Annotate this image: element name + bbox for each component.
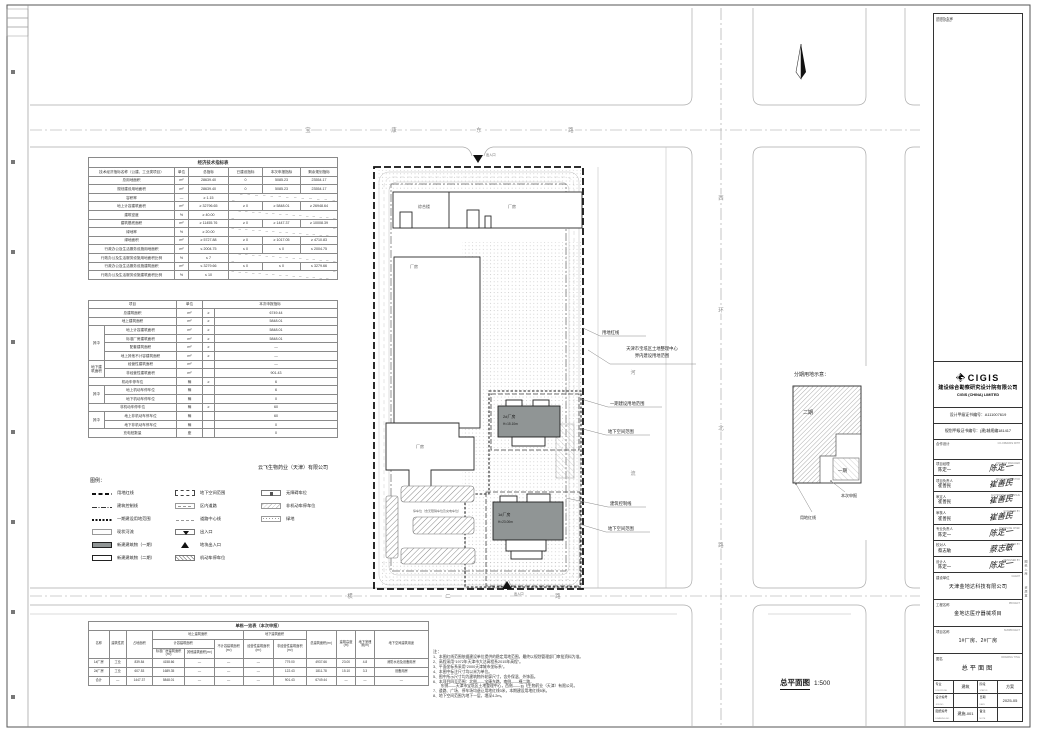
- legend-item-new-building-phase2: 新建建筑物（二期）: [92, 554, 155, 562]
- table-cell: ≥ 0: [229, 202, 263, 211]
- table-cell: 技术经济指标名称（公建、工业类项目）: [89, 168, 175, 177]
- table-cell: 地下建筑面积: [243, 631, 306, 640]
- table-cell: 地上计容建筑面积: [105, 326, 177, 335]
- table-cell: 非经营性建筑面积: [105, 369, 177, 378]
- grid-value-drawing-no: 建施-001: [954, 708, 978, 721]
- field-drawing-title: 图名 DRAWING TITLE 总平面图: [934, 654, 1022, 681]
- table-cell: 工业: [109, 667, 126, 676]
- table-cell: m²: [175, 236, 189, 245]
- table-cell: 5848.01: [215, 317, 338, 326]
- table-cell: 4937.66: [306, 658, 336, 667]
- table-cell: 建筑基底面积: [89, 219, 175, 228]
- building-2-label: 2#厂房: [503, 413, 515, 419]
- svg-text:宝: 宝: [305, 126, 311, 134]
- table-cell: ≥ 1.15: [189, 193, 229, 202]
- signature-row-discipline-chief: 专业负责人 DISCIPLINE CHIEF 陈定一 陈定一: [934, 525, 1022, 541]
- svg-text:环: 环: [718, 307, 724, 314]
- table-cell: 5848.01: [152, 676, 184, 685]
- table-cell: %: [175, 271, 189, 280]
- legend-item-underground: 地下空间范围: [175, 489, 225, 497]
- table-cell: 6749.44: [306, 676, 336, 685]
- signature-row-examined: 审核人 EXAMINED BY 崔善民 崔善民: [934, 508, 1022, 524]
- table-cell: %: [175, 228, 189, 237]
- table-cell: 6: [215, 386, 338, 395]
- table-cell: %: [175, 210, 189, 219]
- table-cell: 非经营性建筑面积(m²): [274, 640, 306, 659]
- table-cell: [203, 412, 215, 421]
- table-cell: [229, 193, 338, 202]
- signature: 崔善民: [989, 509, 1014, 523]
- table-cell: [229, 228, 338, 237]
- table-cell: 工业: [109, 658, 126, 667]
- legend-item-parking: 机动车停车位: [175, 554, 225, 562]
- table-cell: m²: [177, 360, 203, 369]
- table-cell: 其中: [89, 412, 105, 429]
- grid-value-note: [998, 708, 1022, 721]
- table-cell: —: [185, 667, 214, 676]
- table-cell: m²: [175, 245, 189, 254]
- grid-label-status: 阶段STATUS: [978, 681, 998, 693]
- table-cell: 绿地率: [89, 228, 175, 237]
- table-cell: [203, 369, 215, 378]
- table-cell: 消防水池及设备用房: [374, 658, 428, 667]
- annotation-phase1-range: 一期建设用地范围: [610, 400, 644, 407]
- site-entrance-swatch-icon: [175, 542, 195, 548]
- grid-label-job-no: 设计编号JOB NO.: [934, 694, 954, 706]
- grid-value-date: 2025-05: [998, 694, 1022, 706]
- legend-item-control-line: 建筑控制线: [92, 502, 138, 510]
- notes-block: 注： 1、本图红线范围依据建设单位提供的稳定用地范围，最终以规划管理部门审批资料…: [433, 649, 633, 699]
- factory-label-l: 厂房: [416, 443, 424, 449]
- table-cell: 容积率: [89, 193, 175, 202]
- legend-item-phase1-range: 一期建设用地范围: [92, 515, 151, 523]
- svg-text:路: 路: [718, 541, 724, 549]
- table-cell: 0: [229, 176, 263, 185]
- table-cell: 设备用房: [374, 667, 428, 676]
- annex-label: 综合楼: [418, 203, 430, 209]
- note-line: 8、地下空间范围为地下一层，埋深4.2m。: [433, 694, 633, 699]
- phase-redline-label: 用地红线: [800, 514, 816, 520]
- parking-note: 停车位（含无障碍车位及充电车位）: [413, 508, 461, 513]
- legend-item-internal-road: 区内道路: [175, 502, 217, 510]
- table-cell: 1689.35: [152, 667, 184, 676]
- table-cell: ≥: [203, 352, 215, 361]
- table-cell: [203, 395, 215, 404]
- owner-company-name: 云飞生物药业（天津）有限公司: [258, 464, 328, 471]
- table-cell: 辆: [177, 420, 203, 429]
- svg-text:路: 路: [568, 126, 574, 134]
- table-cell: 0: [215, 420, 338, 429]
- table-cell: 建筑性质: [109, 631, 126, 659]
- table-cell: 4158.66: [152, 658, 184, 667]
- table-cell: m²: [177, 352, 203, 361]
- table-cell: 单位: [177, 300, 203, 309]
- legend-item-accessible-parking: 无障碍车位: [261, 489, 307, 497]
- table-cell: —: [109, 676, 126, 685]
- legend-item-green: 绿地: [261, 515, 294, 523]
- archive-stamp-label: 图纸入库: [1024, 560, 1028, 576]
- table-cell: m²: [175, 176, 189, 185]
- table-cell: ≤ 7: [189, 253, 229, 262]
- table-cell: 地上其他不计容建筑面积: [105, 352, 177, 361]
- table-cell: 地下建筑面积: [89, 360, 105, 377]
- annotation-neighbor2: 界内建设用地范围: [635, 352, 669, 359]
- table-cell: 建筑高度(m): [336, 631, 355, 659]
- table-cell: 辆: [177, 412, 203, 421]
- table-cell: %: [175, 253, 189, 262]
- table-cell: —: [336, 676, 355, 685]
- svg-text:康: 康: [391, 126, 397, 134]
- table-cell: 6749.44: [215, 309, 338, 318]
- company-name-en: CIGIS (CHINA) LIMITED: [957, 393, 999, 397]
- table-cell: 辆: [177, 403, 203, 412]
- table-cell: 本次申报指标: [263, 168, 301, 177]
- table-cell: m²: [175, 262, 189, 271]
- table-cell: ≥ 11455.76: [189, 219, 229, 228]
- table-cell: ≥ 1017.05: [263, 236, 301, 245]
- logo-word: CIGIS: [968, 373, 1000, 383]
- company-logo-block: CIGIS 建设综合勘察研究设计院有限公司 CIGIS (CHINA) LIMI…: [934, 362, 1022, 408]
- table-cell: —: [214, 676, 243, 685]
- table-cell: 5848.01: [215, 334, 338, 343]
- table-cell: ≥ 10008.39: [301, 219, 338, 228]
- phase2-label: 二期: [803, 410, 813, 416]
- planning-certificate: 规划甲级证书编号：(建)城规编181417: [934, 424, 1022, 440]
- entrance-bottom-label: 出入口: [514, 591, 524, 596]
- table-cell: 28639.40: [189, 185, 229, 194]
- table-cell: 已建设指标: [229, 168, 263, 177]
- table-cell: 0: [215, 429, 338, 438]
- table-cell: 经营性建筑面积: [105, 360, 177, 369]
- svg-text:横: 横: [347, 592, 353, 600]
- right-margin-strip: 图纸入库 资质章: [1024, 560, 1028, 720]
- table-cell: m²: [177, 309, 203, 318]
- control-line-swatch-icon: [92, 507, 112, 508]
- table-cell: 其中: [89, 326, 105, 360]
- title-block-grid: 专业DISCIPLINE 建筑 阶段STATUS 方案 设计编号JOB NO. …: [934, 681, 1022, 721]
- table-cell: ≥ 40.00: [189, 210, 229, 219]
- table-cell: 经济技术指标表: [89, 158, 338, 168]
- table-cell: ≤ 0: [229, 245, 263, 254]
- centerline-swatch-icon: [175, 520, 195, 521]
- annotation-underground-2: 地下空间范围: [608, 525, 634, 532]
- table: 项目单位本次申报指标总建筑面积m²≥6749.44地上建筑面积m²≥5848.0…: [88, 300, 338, 439]
- table-cell: 0: [229, 185, 263, 194]
- table-cell: 机动车停车位: [89, 377, 177, 386]
- svg-text:河: 河: [630, 369, 635, 376]
- legend-item-new-building-phase1: 新建建筑物（一期）: [92, 541, 155, 549]
- table-cell: m²: [177, 317, 203, 326]
- grid-value-status: 方案: [998, 681, 1022, 693]
- grid-label-drawing-no: 图纸编号DRAWING NO.: [934, 708, 954, 721]
- table-cell: —: [214, 667, 243, 676]
- table-cell: ≥ 0: [229, 236, 263, 245]
- table-cell: 单位: [175, 168, 189, 177]
- table-cell: 计容建筑面积: [152, 640, 214, 649]
- table-cell: 607.53: [126, 667, 152, 676]
- table-cell: ≥: [203, 334, 215, 343]
- table-cell: 地下空间建筑用途: [374, 631, 428, 659]
- scale-title: 总平面图: [780, 677, 810, 690]
- table-cell: —: [185, 658, 214, 667]
- table-cell: [229, 210, 338, 219]
- table-cell: —: [374, 676, 428, 685]
- table-cell: 4.8: [356, 658, 374, 667]
- table-cell: —: [243, 676, 273, 685]
- table-cell: 行政办公及生活服务设施用地面积: [89, 245, 175, 254]
- annotation-redline: 用地红线: [602, 329, 620, 336]
- signature: 陈定一: [989, 461, 1014, 475]
- table-cell: 地上机动车停车位: [105, 386, 177, 395]
- table-cell: 规划建设用地面积: [89, 185, 175, 194]
- table-cell: ≥ 0: [229, 219, 263, 228]
- table-cell: [229, 253, 338, 262]
- building-1-height: H=23.00m: [498, 520, 513, 524]
- building-phase1-swatch-icon: [92, 542, 112, 548]
- table-cell: ≤ 2004.75: [301, 245, 338, 254]
- site-interior: 综合楼 厂房 厂房 厂房 2#厂房 H=15.10m 1#厂房 H=23.00m…: [374, 152, 583, 596]
- table-cell: ≤ 10: [189, 271, 229, 280]
- table-cell: [203, 386, 215, 395]
- field-project: 工程名称 PROJECT 金地达医疗器械项目: [934, 600, 1022, 627]
- signature: 崔善民: [989, 477, 1014, 491]
- table-cell: 122.43: [274, 667, 306, 676]
- table: 单栋一览表（本次申报）名称建筑性质占地面积地上建筑面积地下建筑面积总建筑面积(m…: [88, 621, 429, 686]
- note-seal-box: 说明及会审 NOTE & SEAL: [934, 14, 1022, 362]
- table-cell: ≤ 3279.66: [301, 262, 338, 271]
- table-cell: 合计: [89, 676, 110, 685]
- signature-row-checked: 校对人 CHECKED BY 蔡志敏 蔡志敏: [934, 541, 1022, 557]
- redline-swatch-icon: [92, 493, 112, 495]
- table-cell: 绿地面积: [89, 236, 175, 245]
- table-cell: ≥: [203, 377, 215, 386]
- table-cell: 839.84: [126, 658, 152, 667]
- legend-item-site-entrance: 地块出入口: [175, 541, 221, 549]
- table-cell: —: [215, 352, 338, 361]
- table-cell: ≥ 20.00: [189, 228, 229, 237]
- svg-text:西: 西: [718, 195, 724, 202]
- qualification-stamp-label: 资质章: [1024, 586, 1028, 598]
- application-indicator-table: 项目单位本次申报指标总建筑面积m²≥6749.44地上建筑面积m²≥5848.0…: [88, 300, 338, 439]
- table-cell: 标准厂房建筑面积(m²): [152, 649, 184, 659]
- legend-item-entrance: 出入口: [175, 528, 213, 536]
- svg-text:北: 北: [718, 424, 724, 432]
- entrance-top-label: 出入口: [486, 152, 496, 157]
- table-cell: —: [185, 676, 214, 685]
- table-cell: —: [215, 360, 338, 369]
- nonmotor-parking-swatch-icon: [261, 503, 281, 509]
- table-cell: 配套建筑面积: [105, 343, 177, 352]
- table-cell: 15.10: [336, 667, 355, 676]
- table-cell: ≥ 5727.88: [189, 236, 229, 245]
- legend-item-centerline: 道路中心线: [175, 515, 221, 523]
- table-cell: ≥ 1447.37: [263, 219, 301, 228]
- table-cell: m²: [177, 369, 203, 378]
- table-cell: 901.43: [215, 369, 338, 378]
- table-cell: [229, 271, 338, 280]
- table-cell: 地下非机动车停车位: [105, 420, 177, 429]
- table-cell: m²: [175, 219, 189, 228]
- legend-item-river: 现状河流: [92, 528, 134, 536]
- table-cell: ≥ 5848.01: [263, 202, 301, 211]
- signature: 陈定一: [989, 558, 1014, 572]
- svg-text:二: 二: [445, 594, 451, 600]
- river-swatch-icon: [92, 529, 112, 535]
- table-cell: 总指标: [189, 168, 229, 177]
- economic-indicator-table: 经济技术指标表技术经济指标名称（公建、工业类项目）单位总指标已建设指标本次申报指…: [88, 157, 338, 280]
- table-cell: 5848.01: [215, 326, 338, 335]
- signature: 崔善民: [989, 493, 1014, 507]
- grid-value-discipline: 建筑: [954, 681, 978, 693]
- grid-label-date: 日期DATE: [978, 694, 998, 706]
- table-cell: 60: [215, 412, 338, 421]
- table-cell: —: [243, 658, 273, 667]
- table-cell: 1#厂房: [89, 658, 110, 667]
- table-cell: ≥ 32796.65: [189, 202, 229, 211]
- table-cell: 其他建筑面积(m²): [185, 649, 214, 659]
- table-cell: m²: [175, 202, 189, 211]
- annotation-neighbor1: 天津市宝坻区土地整理中心: [626, 345, 678, 352]
- north-arrow-icon: [796, 44, 806, 79]
- table-cell: —: [175, 193, 189, 202]
- building-1-label: 1#厂房: [498, 511, 510, 517]
- table-cell: ≥: [203, 317, 215, 326]
- table-cell: [203, 360, 215, 369]
- table-cell: 行政办公及生活服务设施用地面积比例: [89, 253, 175, 262]
- table-cell: 其中: [89, 386, 105, 403]
- signature: 蔡志敏: [989, 542, 1014, 556]
- entrance-swatch-icon: [175, 529, 195, 535]
- table-cell: 总建筑面积: [89, 309, 177, 318]
- table-cell: ≥: [203, 326, 215, 335]
- cigis-logo-icon: [956, 373, 965, 382]
- svg-text:流: 流: [630, 470, 635, 477]
- signature-row-project-manager: 项目经理 PROJECT MANAGER 陈定一 陈定一: [934, 460, 1022, 476]
- table-cell: 23554.17: [301, 176, 338, 185]
- table-cell: 779.00: [274, 658, 306, 667]
- company-name-cn: 建设综合勘察研究设计院有限公司: [938, 384, 1017, 391]
- table-cell: 0: [215, 395, 338, 404]
- table-cell: 座: [177, 429, 203, 438]
- table-cell: —: [356, 676, 374, 685]
- field-subproject: 项目名称 SUBPROJECT 1#厂房、2#厂房: [934, 627, 1022, 654]
- phase-apply-label: 本次申报: [841, 492, 857, 498]
- table-cell: 项目: [89, 300, 177, 309]
- factory-label-top: 厂房: [508, 203, 516, 209]
- title-block: 说明及会审 NOTE & SEAL CIGIS 建设综合勘察研究设计院有限公司 …: [933, 13, 1023, 722]
- table-cell: —: [214, 658, 243, 667]
- table-cell: ≤ 0: [229, 262, 263, 271]
- signature-row-authorized: 审定人 AUTHORIZED FOR ISSUE 崔善民 崔善民: [934, 492, 1022, 508]
- table-cell: 总建筑面积(m²): [306, 631, 336, 659]
- table-cell: 名称: [89, 631, 110, 659]
- building-phase2-swatch-icon: [92, 555, 112, 561]
- table-cell: ≥ 4710.83: [301, 236, 338, 245]
- table-cell: ≥: [203, 403, 215, 412]
- table-cell: 建筑密度: [89, 210, 175, 219]
- signature: 陈定一: [989, 526, 1014, 540]
- parking-swatch-icon: [175, 555, 195, 561]
- table-cell: m²: [175, 185, 189, 194]
- factory-label-left: 厂房: [410, 263, 418, 269]
- phase-diagram-title: 分期用地示意：: [794, 371, 829, 378]
- table-cell: 28639.40: [189, 176, 229, 185]
- table-cell: 2#厂房: [89, 667, 110, 676]
- table-cell: 6: [215, 377, 338, 386]
- table-cell: 60: [215, 403, 338, 412]
- building-2-height: H=15.10m: [503, 422, 518, 426]
- table-cell: ≥: [203, 343, 215, 352]
- table-cell: [203, 420, 215, 429]
- table-cell: ≤ 2004.75: [189, 245, 229, 254]
- table-cell: 23554.17: [301, 185, 338, 194]
- legend-item-redline: 用地红线: [92, 489, 134, 497]
- table-cell: 行政办公及生活服务设施建筑面积比例: [89, 271, 175, 280]
- design-certificate: 设计甲级证书编号：A111007619: [934, 408, 1022, 424]
- field-client: 建设单位 CLIENT 天津金地达科技有限公司: [934, 573, 1022, 600]
- notes-title: 注：: [433, 649, 633, 654]
- signature-row-designed: 设计人 DESIGNED BY 陈定一 陈定一: [934, 557, 1022, 573]
- table-cell: 标准厂房建筑面积: [105, 334, 177, 343]
- table-cell: 占地面积: [126, 631, 152, 659]
- phase-diagram: 分期用地示意： 二期 一期 本次申报 用地红线: [793, 371, 861, 520]
- signature-row-project-director: 项目负责人 PROJECT DIRECTOR 崔善民 崔善民: [934, 476, 1022, 492]
- table-cell: 辆: [177, 395, 203, 404]
- internal-road-swatch-icon: [175, 503, 195, 509]
- table-cell: 地下机动车停车位: [105, 395, 177, 404]
- grid-value-job-no: [954, 694, 978, 706]
- table-cell: 行政办公及生活服务设施建筑面积: [89, 262, 175, 271]
- svg-text:东: 东: [476, 126, 482, 134]
- drawing-scale-label: 总平面图 1:500: [780, 677, 830, 690]
- table-cell: 剩余规划指标: [301, 168, 338, 177]
- underground-swatch-icon: [175, 490, 195, 496]
- table-cell: 地下室埋深(m): [356, 631, 374, 659]
- table-cell: ≤ 0: [263, 245, 301, 254]
- table-cell: 5085.23: [263, 185, 301, 194]
- table-cell: 5085.23: [263, 176, 301, 185]
- co-operate-box: 合作设计 CO-OPERATE WITH: [934, 440, 1022, 460]
- table-cell: 总用地面积: [89, 176, 175, 185]
- legend-title: 图例：: [90, 477, 105, 484]
- table-cell: 1447.37: [126, 676, 152, 685]
- table-cell: m²: [177, 326, 203, 335]
- table: 经济技术指标表技术经济指标名称（公建、工业类项目）单位总指标已建设指标本次申报指…: [88, 157, 338, 280]
- table-cell: ≥: [203, 309, 215, 318]
- table-cell: 地上非机动车停车位: [105, 412, 177, 421]
- grid-label-discipline: 专业DISCIPLINE: [934, 681, 954, 693]
- table-cell: 1811.78: [306, 667, 336, 676]
- phase1-range-swatch-icon: [92, 519, 112, 521]
- accessible-parking-swatch-icon: [261, 490, 281, 496]
- table-cell: 单栋一览表（本次申报）: [89, 622, 429, 631]
- table-cell: 901.43: [274, 676, 306, 685]
- table-cell: 辆: [177, 386, 203, 395]
- table-cell: —: [243, 667, 273, 676]
- table-cell: 辆: [177, 377, 203, 386]
- table-cell: m²: [177, 343, 203, 352]
- scale-value: 1:500: [814, 680, 830, 687]
- table-cell: 非机动车停车位: [89, 403, 177, 412]
- annotation-control-line: 建筑控制线: [610, 500, 632, 507]
- table-cell: 充电桩数量: [89, 429, 177, 438]
- building-list-table: 单栋一览表（本次申报）名称建筑性质占地面积地上建筑面积地下建筑面积总建筑面积(m…: [88, 621, 429, 686]
- table-cell: 不计容建筑面积(m²): [214, 640, 243, 659]
- table-cell: [203, 429, 215, 438]
- table-cell: 23.00: [336, 658, 355, 667]
- drawing-sheet: 宝 康 东 路 横 二 路 西 环 北 路 河 流: [0, 0, 1037, 732]
- table-cell: m²: [177, 334, 203, 343]
